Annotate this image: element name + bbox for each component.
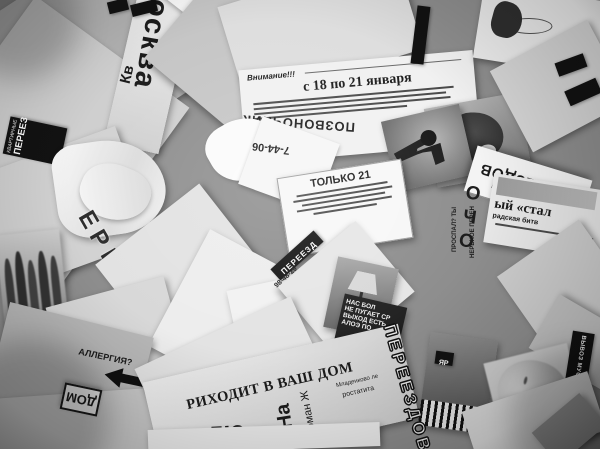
- label-dom-text: ДОМ: [65, 389, 98, 410]
- caption-rostatita: ростатита: [342, 385, 375, 399]
- newspaper-collage-photo: осква Кв Внимание!!! с 18 по 21 января П…: [0, 0, 600, 449]
- label-yar-chip: ЯР: [434, 351, 454, 366]
- headline-prihodit: РИХОДИТ В ВАШ ДОМ: [185, 359, 355, 414]
- lamp-shade: [348, 269, 382, 295]
- eye: [523, 376, 528, 384]
- label-yar-text: ЯР: [438, 359, 449, 367]
- headline-prospal: ПРОСПАЛ? ТЫ: [452, 207, 458, 252]
- headline-nervnoe: НЕРВНОЕ ПЕРЕН: [470, 206, 476, 258]
